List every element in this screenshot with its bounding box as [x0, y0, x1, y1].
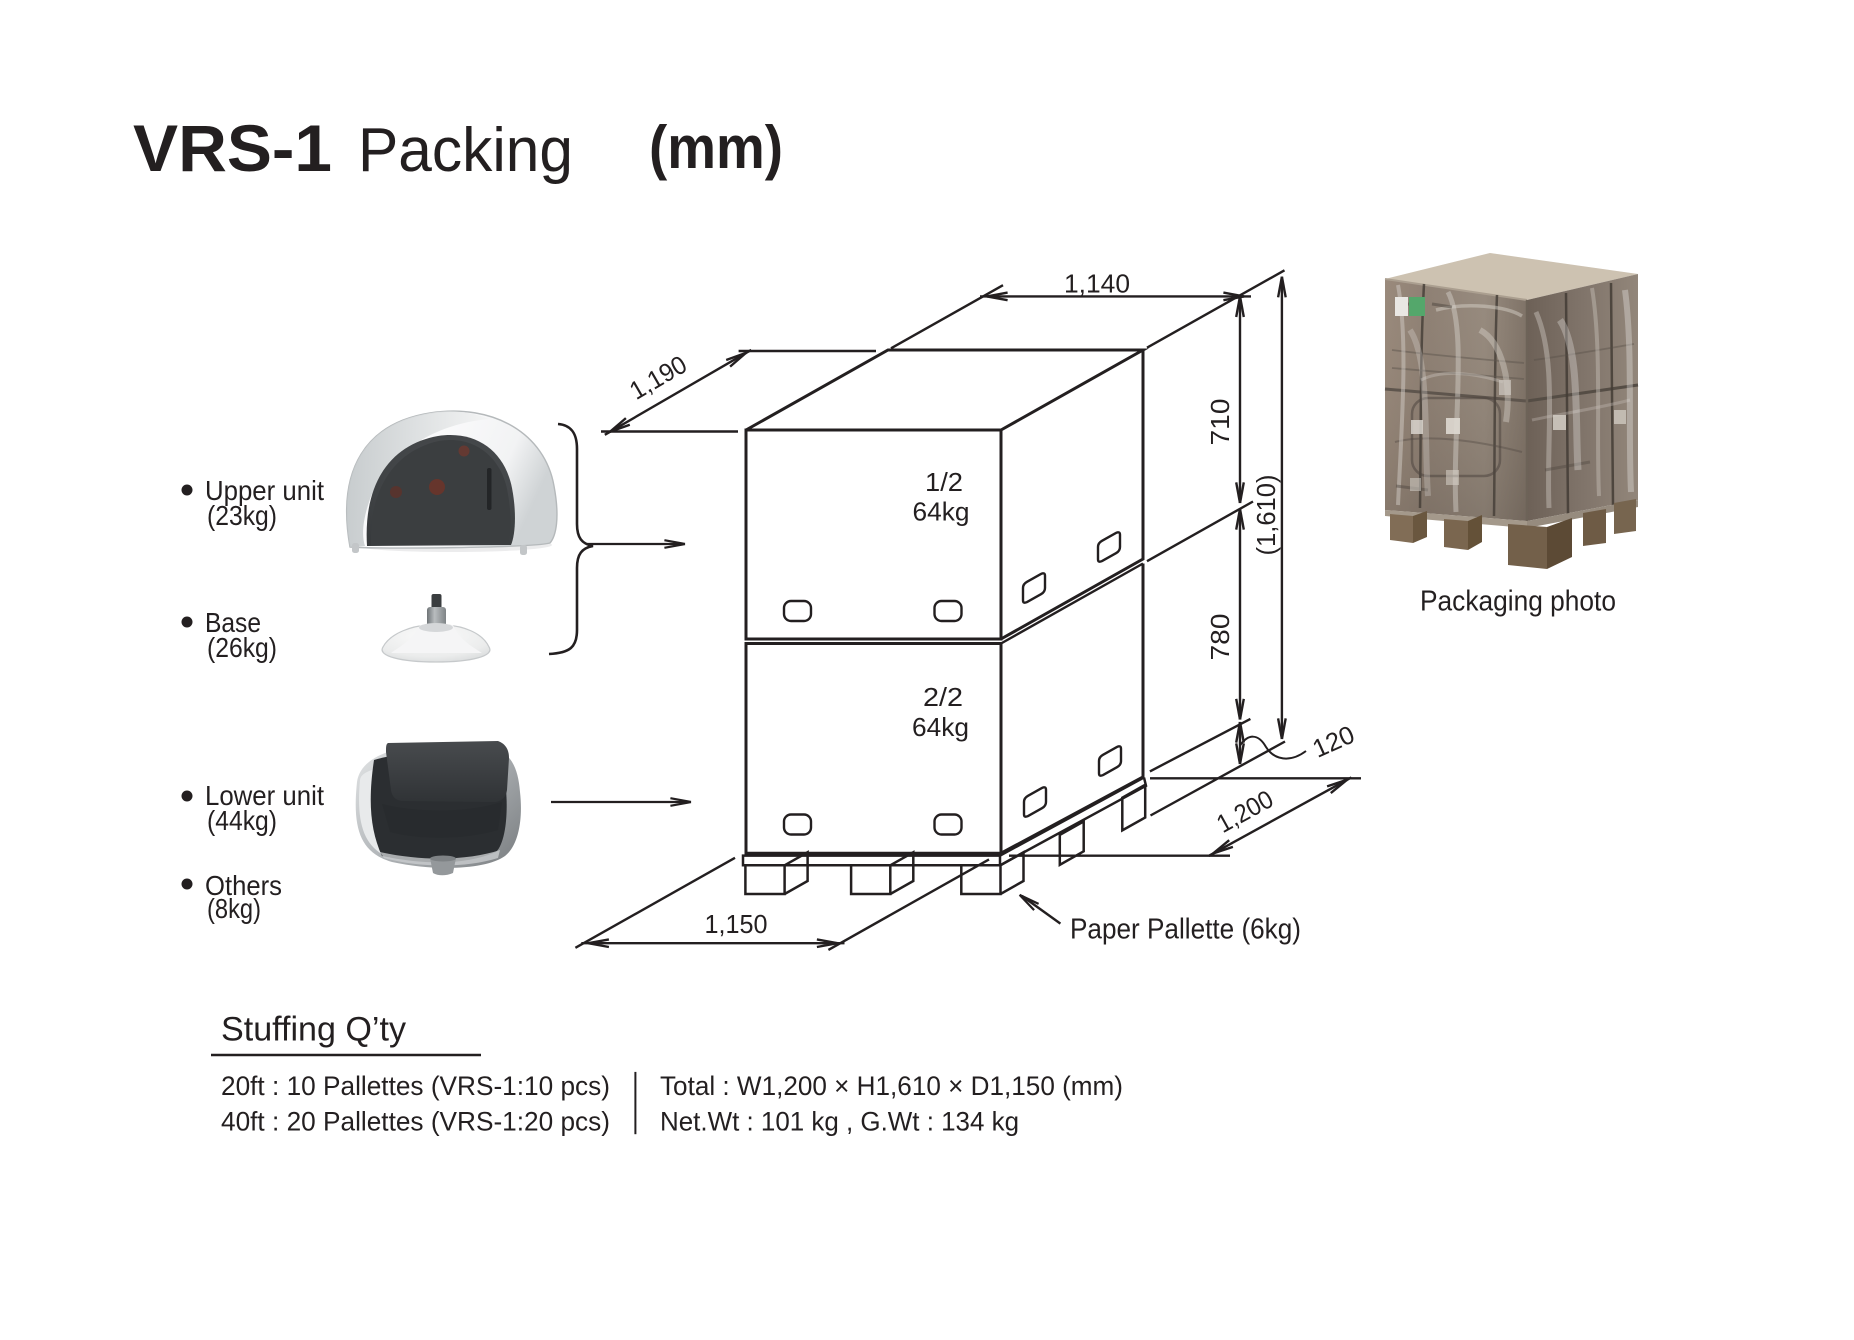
- svg-text:1,140: 1,140: [1064, 271, 1130, 299]
- svg-text:VRS-1: VRS-1: [133, 111, 332, 185]
- svg-text:Stuffing Q’ty: Stuffing Q’ty: [221, 1010, 406, 1048]
- svg-text:Total : W1,200 × H1,610 × D1,1: Total : W1,200 × H1,610 × D1,150 (mm): [660, 1071, 1123, 1101]
- svg-text:(mm): (mm): [649, 114, 783, 181]
- svg-text:(1,610): (1,610): [1253, 475, 1281, 556]
- svg-text:(23kg): (23kg): [207, 500, 277, 531]
- svg-text:64kg: 64kg: [912, 712, 969, 742]
- svg-text:(26kg): (26kg): [207, 632, 277, 663]
- svg-text:(8kg): (8kg): [207, 893, 261, 924]
- svg-text:710: 710: [1205, 399, 1235, 446]
- svg-text:(44kg): (44kg): [207, 805, 277, 836]
- svg-text:Packaging photo: Packaging photo: [1420, 586, 1616, 618]
- svg-text:64kg: 64kg: [913, 497, 970, 527]
- svg-text:1,150: 1,150: [705, 911, 768, 939]
- svg-text:780: 780: [1205, 614, 1235, 661]
- svg-text:1/2: 1/2: [925, 467, 963, 497]
- svg-text:Paper Pallette (6kg): Paper Pallette (6kg): [1070, 913, 1301, 945]
- svg-text:Packing: Packing: [358, 116, 573, 185]
- svg-text:Net.Wt : 101 kg , G.Wt : 134 k: Net.Wt : 101 kg , G.Wt : 134 kg: [660, 1107, 1019, 1137]
- svg-text:2/2: 2/2: [923, 682, 963, 712]
- svg-text:40ft : 20 Pallettes (VRS-1:20: 40ft : 20 Pallettes (VRS-1:20 pcs): [221, 1107, 610, 1137]
- svg-text:20ft : 10 Pallettes (VRS-1:10: 20ft : 10 Pallettes (VRS-1:10 pcs): [221, 1071, 610, 1101]
